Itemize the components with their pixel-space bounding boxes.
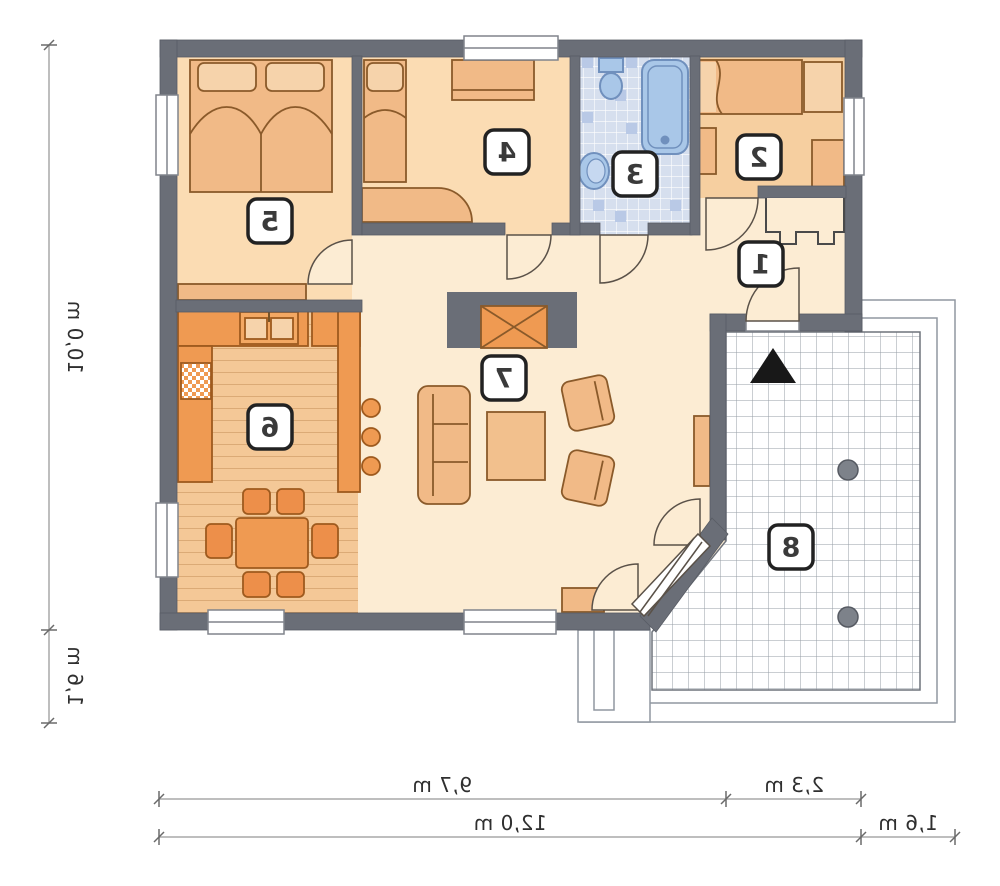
wall-right [845, 40, 862, 332]
wall-hall-3 [648, 223, 692, 235]
wardrobe [362, 188, 472, 222]
armchair [560, 374, 615, 432]
room-label-1: 1 [739, 242, 783, 286]
room-label-3: 3 [613, 152, 657, 196]
room-label-5: 5 [248, 199, 292, 243]
terrace-steps [578, 630, 650, 722]
sofa [418, 386, 470, 504]
dim-text-bottom-overhang: 1,6 m [878, 811, 938, 835]
kitchen-sink-basin [271, 318, 293, 339]
wall-entry-right [799, 314, 862, 331]
wall-bath-west [570, 56, 580, 235]
dining-chair [243, 489, 270, 514]
dining-chair [243, 572, 270, 597]
bar-stool [362, 457, 380, 475]
pillow [198, 63, 256, 91]
dining-chair [277, 572, 304, 597]
kitchen-sink-basin [245, 318, 267, 339]
wall-room2-south [758, 186, 846, 198]
cabinet [694, 416, 710, 486]
dim-text-left-lower: 1,6 m [63, 646, 87, 706]
dim-text-left-total: 10,0 m [63, 300, 87, 373]
kitchen-bar-counter [338, 310, 360, 492]
toilet-bowl [600, 73, 622, 99]
sofa-bed [452, 60, 534, 100]
bathtub-drain [662, 137, 669, 144]
wall-bath-room2 [690, 56, 700, 235]
room-label-2: 2 [737, 135, 781, 179]
room-label-6: 6 [248, 405, 292, 449]
dining-chair [312, 524, 338, 558]
room-number-text: 3 [626, 160, 645, 191]
washbasin-inner [587, 159, 605, 183]
bar-stool [362, 399, 380, 417]
dining-table [236, 518, 308, 568]
room-number-text: 7 [495, 364, 514, 395]
toilet-tank [599, 58, 623, 72]
terrace-column [838, 460, 858, 480]
floor-plan-page: 1 2 3 4 5 6 7 8 [0, 0, 1000, 886]
room-label-7: 7 [482, 356, 526, 400]
wardrobe [812, 140, 844, 192]
room-label-8: 8 [769, 525, 813, 569]
wall-kitchen-north [176, 300, 362, 312]
room-number-text: 4 [498, 138, 517, 169]
pillow [266, 63, 324, 91]
kitchen-stove [181, 363, 211, 399]
pillow [367, 63, 403, 91]
room-label-4: 4 [485, 130, 529, 174]
wall-room5-room4 [352, 56, 362, 235]
floor-plan-canvas: 1 2 3 4 5 6 7 8 [0, 0, 1000, 886]
dim-text-bottom-terrace: 2,3 m [764, 773, 824, 797]
wall-hall-1 [362, 223, 505, 235]
wardrobe [178, 284, 306, 300]
dining-chair [277, 489, 304, 514]
wall-living-terrace [710, 314, 726, 540]
room-number-text: 6 [261, 413, 280, 444]
bar-stool [362, 428, 380, 446]
room-number-text: 8 [782, 533, 801, 564]
room-number-text: 5 [261, 207, 280, 238]
chest [804, 62, 842, 112]
armchair [560, 449, 615, 507]
room-number-text: 2 [750, 143, 769, 174]
dim-text-bottom-total: 12,0 m [473, 811, 546, 835]
dining-chair [206, 524, 232, 558]
dim-text-bottom-main: 9,7 m [412, 773, 472, 797]
coffee-table [487, 412, 545, 480]
terrace-column [838, 607, 858, 627]
room-number-text: 1 [752, 250, 771, 281]
